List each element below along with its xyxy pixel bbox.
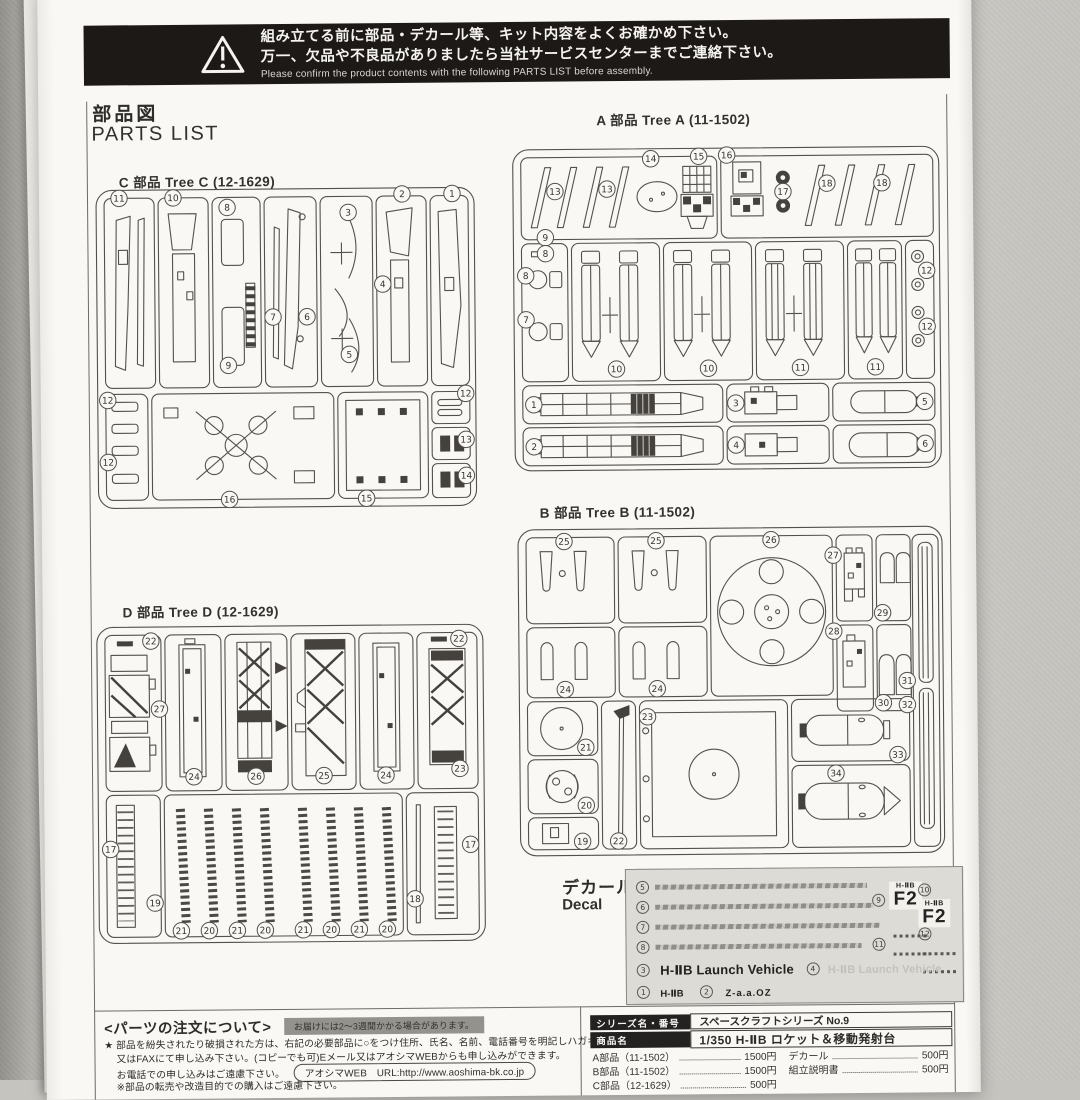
svg-text:6: 6: [922, 440, 928, 450]
svg-text:8: 8: [543, 250, 549, 260]
tree-d-part-numbers: 2227242625242322171921202120212021201817: [101, 630, 480, 940]
tree-d-title: D 部品 Tree D (12-1629): [123, 600, 279, 621]
svg-text:21: 21: [176, 927, 188, 937]
svg-text:17: 17: [105, 846, 117, 856]
svg-text:31: 31: [901, 677, 913, 687]
svg-text:9: 9: [542, 234, 548, 244]
banner-text: 組み立てる前に部品・デカール等、キット内容をよくお確かめ下さい。 万一、欠品や不…: [261, 24, 783, 81]
decal-launch-vehicle-ghost: H-ⅡB Launch Vehicle: [828, 963, 942, 976]
svg-text:18: 18: [876, 179, 888, 189]
svg-text:26: 26: [765, 536, 777, 546]
svg-text:5: 5: [346, 351, 352, 361]
svg-text:22: 22: [453, 635, 465, 645]
svg-text:3: 3: [733, 399, 739, 409]
svg-text:25: 25: [558, 538, 570, 548]
svg-text:23: 23: [454, 765, 466, 775]
decal-num-8: 8: [636, 941, 649, 954]
svg-text:25: 25: [650, 537, 662, 547]
svg-text:27: 27: [827, 551, 839, 561]
svg-text:12: 12: [921, 266, 933, 276]
svg-text:8: 8: [523, 272, 529, 282]
decal-logo-mark: Z-a.a.OZ: [725, 988, 771, 999]
product-label-cell: 商品名: [590, 1031, 690, 1048]
svg-text:8: 8: [224, 204, 230, 214]
price-a-value: 1500円: [744, 1048, 776, 1063]
price-b-value: 1500円: [744, 1062, 776, 1077]
svg-text:2: 2: [531, 443, 537, 453]
svg-text:7: 7: [523, 316, 529, 326]
svg-text:4: 4: [380, 280, 386, 290]
order-note: お届けには2〜3週間かかる場合があります。: [284, 1016, 484, 1035]
svg-text:1: 1: [531, 401, 537, 411]
svg-text:34: 34: [830, 769, 842, 779]
decal-num-11: 11: [872, 937, 885, 950]
svg-text:21: 21: [298, 926, 310, 936]
svg-text:6: 6: [304, 313, 310, 323]
decal-label-en: Decal: [562, 896, 602, 913]
svg-text:12: 12: [103, 459, 115, 469]
decal-f2-right-big: F2: [922, 907, 946, 926]
svg-text:10: 10: [611, 365, 623, 375]
decal-label-jp: デカール: [562, 873, 634, 899]
svg-text:24: 24: [652, 685, 664, 695]
decal-stripe-4: [656, 943, 862, 950]
tree-b-part-numbers: 252526272924242830212019222333343132: [556, 530, 917, 850]
svg-text:21: 21: [580, 743, 592, 753]
svg-text:21: 21: [354, 925, 366, 935]
price-c-value: 500円: [750, 1076, 777, 1091]
svg-text:22: 22: [145, 637, 157, 647]
decal-num-4: 4: [806, 963, 819, 976]
price-decal-value: 500円: [922, 1046, 949, 1061]
svg-text:20: 20: [382, 925, 394, 935]
decal-num-1: 1: [637, 986, 650, 999]
banner-line-en: Please confirm the product contents with…: [261, 65, 783, 81]
decal-launch-vehicle-text: H-ⅡB Launch Vehicle: [660, 962, 794, 978]
sprue-tree-d-diagram: 2227242625242322171921202120212021201817: [95, 622, 488, 945]
svg-text:9: 9: [226, 362, 232, 372]
svg-text:1: 1: [449, 190, 455, 200]
svg-text:13: 13: [549, 188, 561, 198]
svg-text:5: 5: [922, 398, 928, 408]
decal-stripe-3: [655, 923, 879, 930]
svg-text:11: 11: [870, 363, 882, 373]
svg-text:16: 16: [721, 151, 733, 161]
decal-num-2: 2: [700, 986, 713, 999]
svg-text:13: 13: [460, 436, 472, 446]
svg-text:18: 18: [409, 895, 421, 905]
svg-text:19: 19: [577, 838, 589, 848]
sprue-tree-a-diagram: 13131415161718189887101011111212135246: [511, 144, 944, 473]
svg-text:18: 18: [821, 179, 833, 189]
svg-text:28: 28: [828, 627, 840, 637]
frame-bottom-divider: [94, 1003, 954, 1012]
svg-text:17: 17: [465, 840, 477, 850]
decal-f2-right: H-ⅡBF2: [918, 899, 950, 927]
svg-text:12: 12: [460, 390, 472, 400]
bottom-section-divider: [580, 1006, 582, 1095]
svg-text:25: 25: [318, 772, 330, 782]
svg-text:32: 32: [902, 701, 914, 711]
instruction-sheet: 組み立てる前に部品・デカール等、キット内容をよくお確かめ下さい。 万一、欠品や不…: [37, 0, 981, 1100]
svg-text:11: 11: [113, 195, 125, 205]
svg-text:20: 20: [204, 927, 216, 937]
decal-num-10: 10: [918, 884, 931, 897]
svg-text:23: 23: [642, 713, 654, 723]
svg-text:17: 17: [777, 188, 789, 198]
svg-text:19: 19: [149, 899, 161, 909]
svg-text:16: 16: [224, 496, 236, 506]
svg-text:10: 10: [167, 194, 179, 204]
svg-text:29: 29: [877, 609, 889, 619]
decal-num-9: 9: [872, 894, 885, 907]
svg-text:33: 33: [892, 751, 904, 761]
series-label-cell: シリーズ名・番号: [590, 1014, 690, 1030]
sprue-tree-c-diagram: 111082134567912121615121314: [94, 185, 479, 510]
svg-text:4: 4: [733, 441, 739, 451]
price-row-c-partial: C部品（12-1629）500円: [593, 1076, 777, 1093]
decal-num-5: 5: [636, 881, 649, 894]
svg-text:24: 24: [188, 773, 200, 783]
sprue-tree-b-diagram: 252526272924242830212019222333343132: [516, 524, 947, 858]
decal-num-6: 6: [636, 901, 649, 914]
warning-banner: 組み立てる前に部品・デカール等、キット内容をよくお確かめ下さい。 万一、欠品や不…: [83, 18, 949, 86]
svg-text:20: 20: [260, 926, 272, 936]
order-heading: <パーツの注文について>: [104, 1020, 271, 1037]
svg-text:30: 30: [878, 699, 890, 709]
svg-text:26: 26: [250, 772, 262, 782]
svg-text:14: 14: [645, 155, 657, 165]
svg-text:3: 3: [345, 209, 351, 219]
svg-text:24: 24: [560, 686, 572, 696]
svg-text:14: 14: [461, 472, 473, 482]
price-c-name: C部品（12-1629）: [593, 1077, 677, 1093]
svg-text:2: 2: [399, 190, 405, 200]
svg-text:21: 21: [232, 927, 244, 937]
price-manual-name: 組立説明書: [789, 1061, 839, 1076]
svg-text:27: 27: [154, 705, 166, 715]
svg-text:12: 12: [102, 397, 114, 407]
svg-text:15: 15: [693, 152, 705, 162]
price-manual-value: 500円: [922, 1060, 949, 1075]
svg-text:11: 11: [795, 364, 807, 374]
decal-stripe-1: [655, 883, 867, 890]
decal-num-3: 3: [637, 964, 650, 977]
decal-num-12: 12: [918, 928, 931, 941]
decal-stripe-2: [655, 903, 873, 910]
svg-text:7: 7: [270, 313, 276, 323]
svg-text:22: 22: [613, 837, 625, 847]
svg-text:20: 20: [326, 926, 338, 936]
page-title-en: PARTS LIST: [91, 123, 219, 147]
warning-triangle-icon: [200, 34, 246, 74]
tree-b-title: B 部品 Tree B (11-1502): [540, 500, 696, 521]
product-value-cell: 1/350 H-ⅡB ロケット＆移動発射台: [690, 1028, 952, 1048]
series-value-cell: スペースクラフトシリーズ No.9: [690, 1011, 952, 1029]
price-row-manual: 組立説明書500円: [789, 1060, 949, 1076]
banner-line-2: 万一、欠品や不良品がありましたら当社サービスセンターまでご連絡下さい。: [261, 43, 783, 67]
decal-f2-left: H-ⅡBF2: [889, 881, 921, 909]
tree-a-title: A 部品 Tree A (11-1502): [596, 108, 750, 129]
svg-text:20: 20: [581, 801, 593, 811]
decal-num-7: 7: [636, 921, 649, 934]
svg-text:24: 24: [380, 771, 392, 781]
svg-text:15: 15: [361, 494, 373, 504]
price-decal-name: デカール: [788, 1047, 828, 1062]
svg-text:12: 12: [921, 322, 933, 332]
svg-text:13: 13: [601, 185, 613, 195]
decal-sheet: 5 6 7 8 9 H-ⅡBF2 10 H-ⅡBF2 11 12 3 H-ⅡB …: [625, 866, 964, 1005]
svg-text:10: 10: [703, 364, 715, 374]
decal-f2-left-big: F2: [894, 889, 918, 908]
decal-hiib-text: H-ⅡB: [660, 988, 683, 999]
